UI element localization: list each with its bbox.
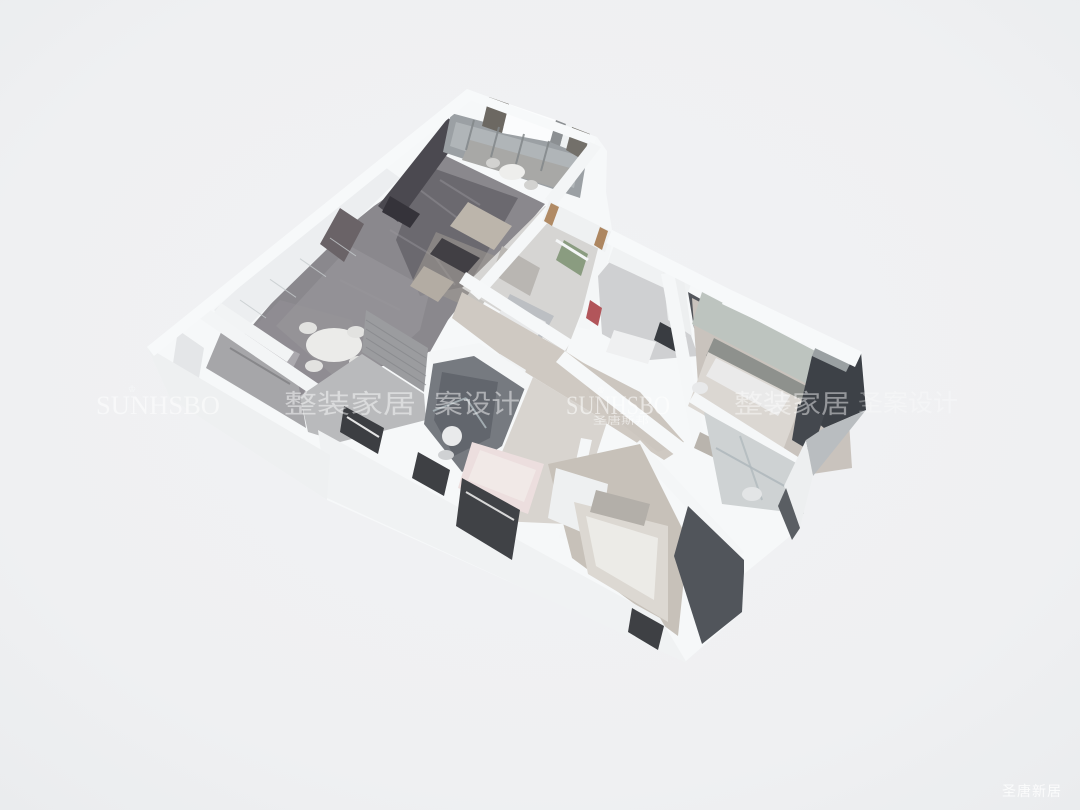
svg-text:整装家居: 整装家居 — [734, 389, 850, 419]
svg-text:SUNHSBO: SUNHSBO — [96, 391, 220, 420]
svg-text:♔: ♔ — [128, 384, 136, 394]
svg-text:整装家居: 整装家居 — [284, 389, 416, 419]
svg-text:圣唐新居: 圣唐新居 — [1002, 783, 1062, 799]
svg-text:♔: ♔ — [597, 385, 605, 395]
svg-text:圣案设计: 圣案设计 — [858, 390, 958, 417]
svg-text:圣唐斯邦: 圣唐斯邦 — [593, 414, 649, 427]
svg-text:案设计: 案设计 — [434, 389, 520, 419]
